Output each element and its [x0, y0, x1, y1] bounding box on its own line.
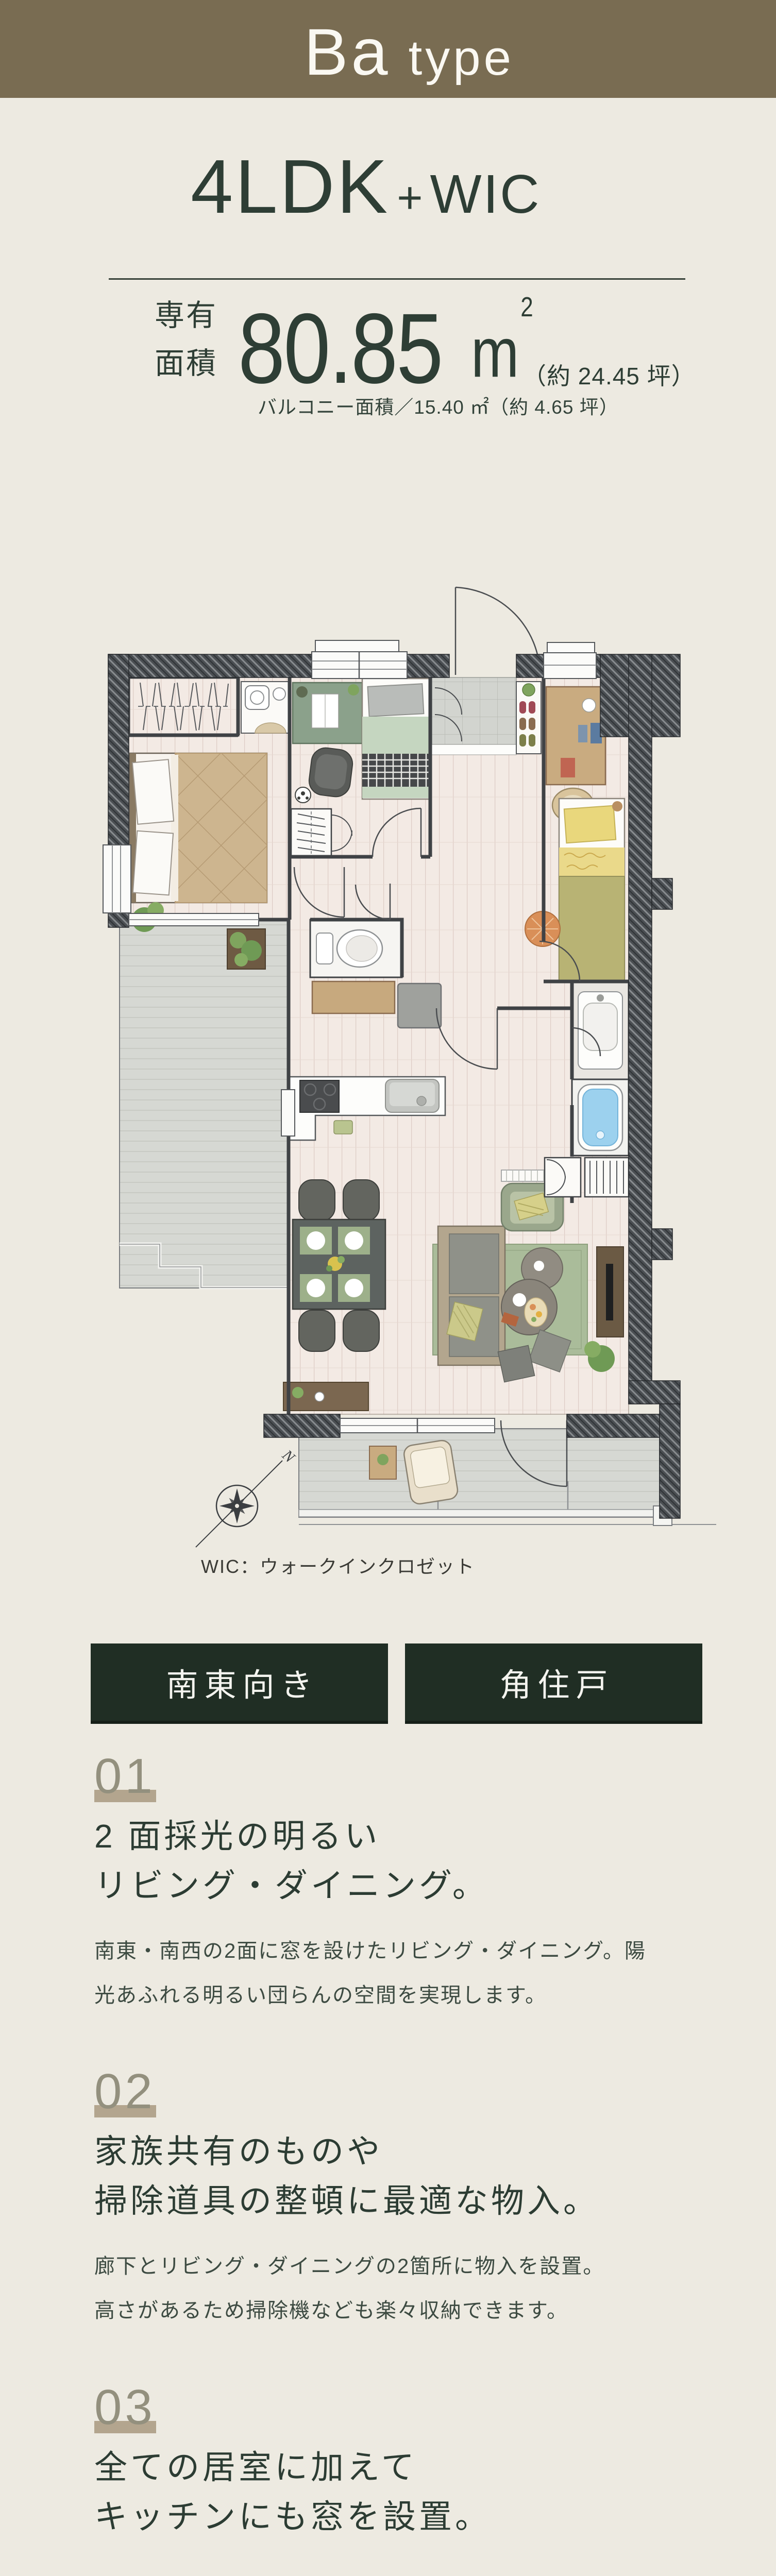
layout-extra: WIC — [430, 163, 541, 226]
feature-2-body-line1: 廊下とリビング・ダイニングの2箇所に物入を設置。 — [94, 2244, 733, 2289]
plan-type-title: Ba type — [304, 14, 514, 90]
badge-facing: 南東向き — [91, 1643, 388, 1721]
area-unit-m: m — [471, 313, 519, 392]
header-band: Ba type — [0, 0, 776, 98]
floor-plan: N — [77, 559, 757, 1595]
brochure-page: { "header": { "type_name": "Ba", "type_w… — [0, 0, 776, 2576]
refrigerator — [398, 984, 441, 1028]
feature-3-heading: 全ての居室に加えて キッチンにも窓を設置。 — [94, 2443, 733, 2541]
powder-corner — [241, 682, 290, 733]
plan-type-name: Ba — [304, 14, 391, 90]
washroom — [572, 981, 629, 1079]
compass-north-label: N — [279, 1446, 299, 1467]
toilet-room — [310, 920, 402, 977]
area-label-bottom: 面積 — [155, 340, 217, 387]
feature-section-2: 02 家族共有のものや 掃除道具の整頓に最適な物入。 廊下とリビング・ダイニング… — [94, 2067, 733, 2333]
feature-2-heading-line1: 家族共有のものや — [94, 2127, 733, 2176]
feature-1-number: 01 — [94, 1752, 733, 1801]
feature-2-heading-line2: 掃除道具の整頓に最適な物入。 — [94, 2176, 733, 2226]
feature-2-body-line2: 高さがあるため掃除機なども楽々収納できます。 — [94, 2289, 733, 2333]
layout-title: 4LDK + WIC — [191, 143, 541, 231]
area-label-top: 専有 — [155, 292, 217, 340]
main-balcony — [299, 1429, 716, 1526]
layout-main: 4LDK — [191, 143, 390, 231]
feature-2-body: 廊下とリビング・ダイニングの2箇所に物入を設置。 高さがあるため掃除機なども楽々… — [94, 2244, 733, 2333]
area-unit-exp: 2 — [520, 292, 533, 323]
plan-type-word: type — [409, 30, 514, 87]
feature-1-heading: 2 面採光の明るい リビング・ダイニング。 — [94, 1811, 733, 1910]
feature-2-number: 02 — [94, 2067, 733, 2116]
feature-3-number: 03 — [94, 2383, 733, 2432]
feature-1-body: 南東・南西の2面に窓を設けたリビング・ダイニング。陽 光あふれる明るい団らんの空… — [94, 1929, 733, 2018]
feature-1-body-line2: 光あふれる明るい団らんの空間を実現します。 — [94, 1973, 733, 2018]
plan-caption: WIC：ウォークインクロゼット — [201, 1552, 475, 1579]
feature-2-heading: 家族共有のものや 掃除道具の整頓に最適な物入。 — [94, 2127, 733, 2226]
feature-3-heading-line2: キッチンにも窓を設置。 — [94, 2492, 733, 2541]
compass-rose: N — [196, 1446, 299, 1547]
feature-section-3: 03 全ての居室に加えて キッチンにも窓を設置。 キッチンにも窓を設け、換気効率… — [94, 2383, 733, 2576]
area-value: 80.85 — [238, 292, 442, 406]
balcony-area-note: バルコニー面積／15.40 ㎡（約 4.65 坪） — [258, 392, 619, 419]
title-divider — [109, 278, 685, 280]
feature-1-heading-line2: リビング・ダイニング。 — [94, 1861, 733, 1910]
hall-storage — [312, 981, 395, 1013]
entrance — [432, 677, 541, 755]
badge-corner-label: 角住戸 — [493, 1659, 614, 1705]
layout-plus: + — [397, 173, 423, 224]
feature-section-1: 01 2 面採光の明るい リビング・ダイニング。 南東・南西の2面に窓を設けたリ… — [94, 1752, 733, 2018]
balcony-chair — [403, 1439, 459, 1505]
area-label: 専有 面積 — [155, 292, 217, 387]
area-tsubo: （約 24.45 坪） — [522, 358, 696, 392]
left-balcony — [120, 920, 288, 1288]
hall-closets — [545, 1158, 629, 1197]
feature-1-body-line1: 南東・南西の2面に窓を設けたリビング・ダイニング。陽 — [94, 1929, 733, 1973]
badge-corner: 角住戸 — [405, 1643, 702, 1721]
bathroom — [572, 1079, 629, 1156]
feature-3-heading-line1: 全ての居室に加えて — [94, 2443, 733, 2492]
feature-1-heading-line1: 2 面採光の明るい — [94, 1811, 733, 1861]
badge-facing-label: 南東向き — [160, 1659, 318, 1705]
